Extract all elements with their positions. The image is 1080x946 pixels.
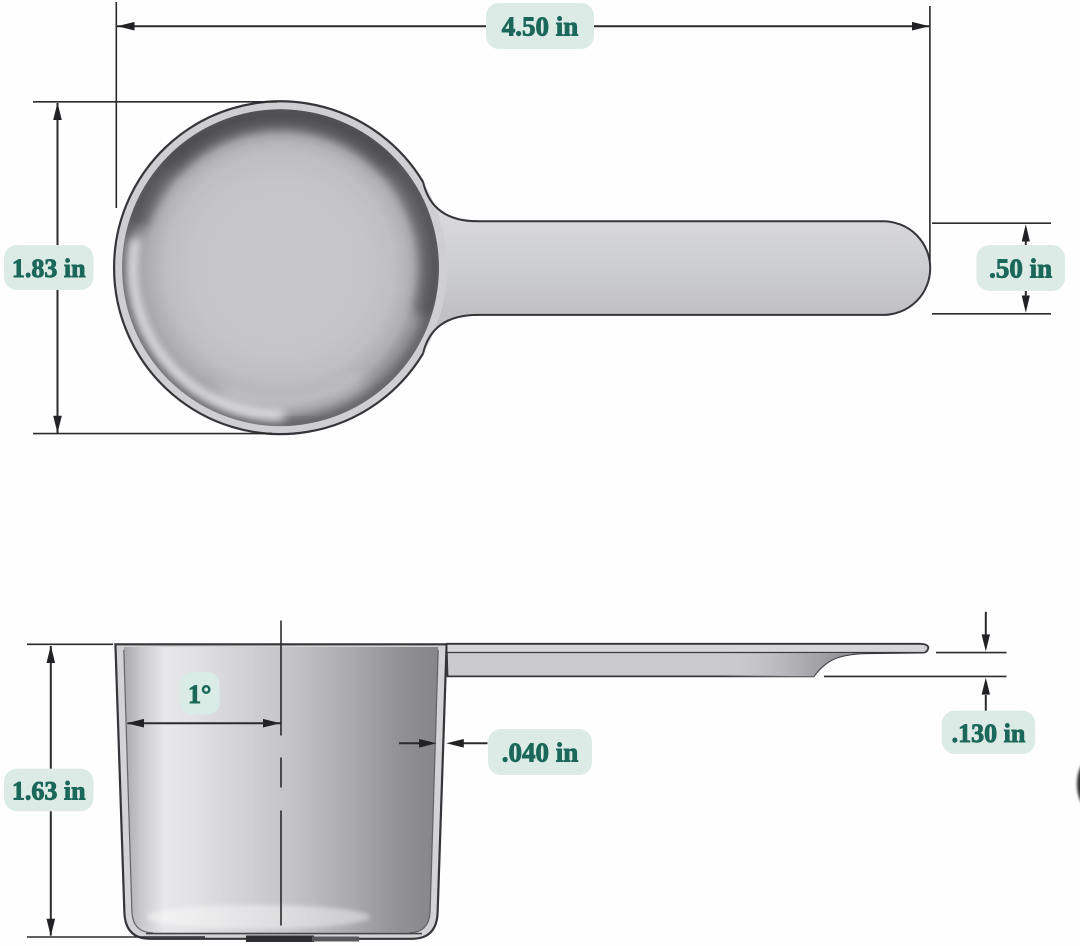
svg-text:1.63 in: 1.63 in — [12, 777, 86, 806]
svg-text:.50 in: .50 in — [989, 254, 1052, 284]
svg-text:4.50 in: 4.50 in — [502, 12, 579, 42]
svg-text:.040 in: .040 in — [502, 738, 579, 768]
svg-text:1.83 in: 1.83 in — [12, 254, 86, 283]
svg-text:1°: 1° — [188, 680, 211, 709]
svg-text:.130 in: .130 in — [952, 719, 1026, 748]
